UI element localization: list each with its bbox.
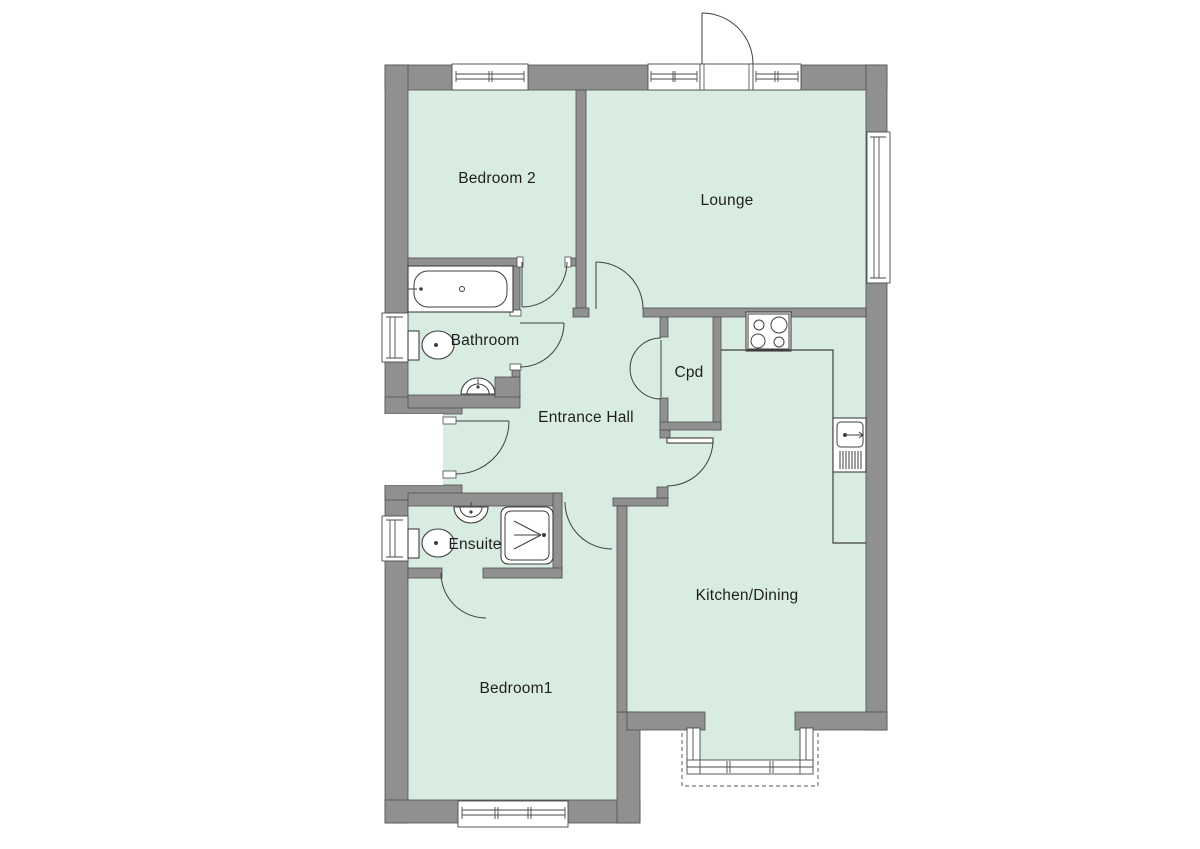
wall-bedroom1-kitchen-divider (617, 506, 627, 712)
window-ensuite-left (382, 516, 408, 561)
front-door (702, 13, 753, 64)
shower-ensuite (501, 507, 553, 564)
wall-cpd-bottom (660, 422, 721, 430)
bathtub (408, 266, 513, 312)
floor-plan-drawing: Bedroom 2 Lounge Bathroom Entrance Hall … (0, 0, 1200, 849)
window-lounge-top-left (648, 64, 700, 90)
room-label-entrance-hall: Entrance Hall (538, 409, 634, 426)
window-bedroom2-top (452, 64, 528, 90)
front-door-opening (700, 64, 753, 90)
window-lounge-top-right (753, 64, 801, 90)
wall-kitchen-door-stub (657, 487, 668, 498)
wall-kitchen-bottom-right (795, 712, 887, 730)
wall-cpd-right (713, 317, 721, 430)
wall-ensuite-bottom-left (408, 568, 442, 578)
wall-ensuite-bottom-right (483, 568, 562, 578)
toilet-ensuite (408, 529, 454, 558)
wall-ensuite-top (408, 493, 562, 506)
room-label-cpd: Cpd (674, 364, 703, 381)
bedroom2-door-jamb-right (565, 257, 571, 267)
window-bedroom1-bottom (458, 801, 568, 827)
kitchen-sink (833, 418, 866, 472)
wall-divider-cap (573, 308, 589, 317)
wall-bathroom-nib (495, 377, 520, 397)
room-label-bedroom1: Bedroom1 (479, 680, 552, 697)
window-bathroom-left (382, 313, 408, 362)
floor-bay-pocket (700, 712, 800, 760)
front-door-jamb-left (700, 64, 704, 90)
wall-kitchen-bottom-left (627, 712, 705, 730)
wall-cpd-left-top (660, 317, 668, 337)
wall-hall-south (613, 498, 668, 506)
toilet-bathroom (408, 331, 454, 360)
room-label-kitchen-dining: Kitchen/Dining (696, 587, 799, 604)
window-lounge-right (867, 132, 890, 283)
room-label-bedroom2: Bedroom 2 (458, 170, 536, 187)
floor-areas (408, 90, 866, 803)
wall-ensuite-right (553, 493, 562, 578)
wall-bedroom2-bottom (408, 258, 522, 266)
porch-door-jamb-top (443, 417, 456, 424)
front-door-jamb-right (749, 64, 753, 90)
room-label-lounge: Lounge (701, 192, 754, 209)
wall-bedroom2-lounge-divider (576, 90, 586, 308)
room-label-bathroom: Bathroom (451, 332, 520, 349)
floor-footprint (408, 90, 866, 803)
wall-cpd-under-stub (660, 430, 670, 438)
hob (746, 312, 791, 351)
porch-door-jamb-bottom (443, 471, 456, 478)
bathroom-door-jamb-bottom (510, 364, 521, 370)
wall-exterior-left-upper (385, 65, 408, 415)
room-label-ensuite: Ensuite (448, 536, 501, 553)
floor-plan-page: Bedroom 2 Lounge Bathroom Entrance Hall … (0, 0, 1200, 849)
porch-recess (382, 414, 443, 485)
